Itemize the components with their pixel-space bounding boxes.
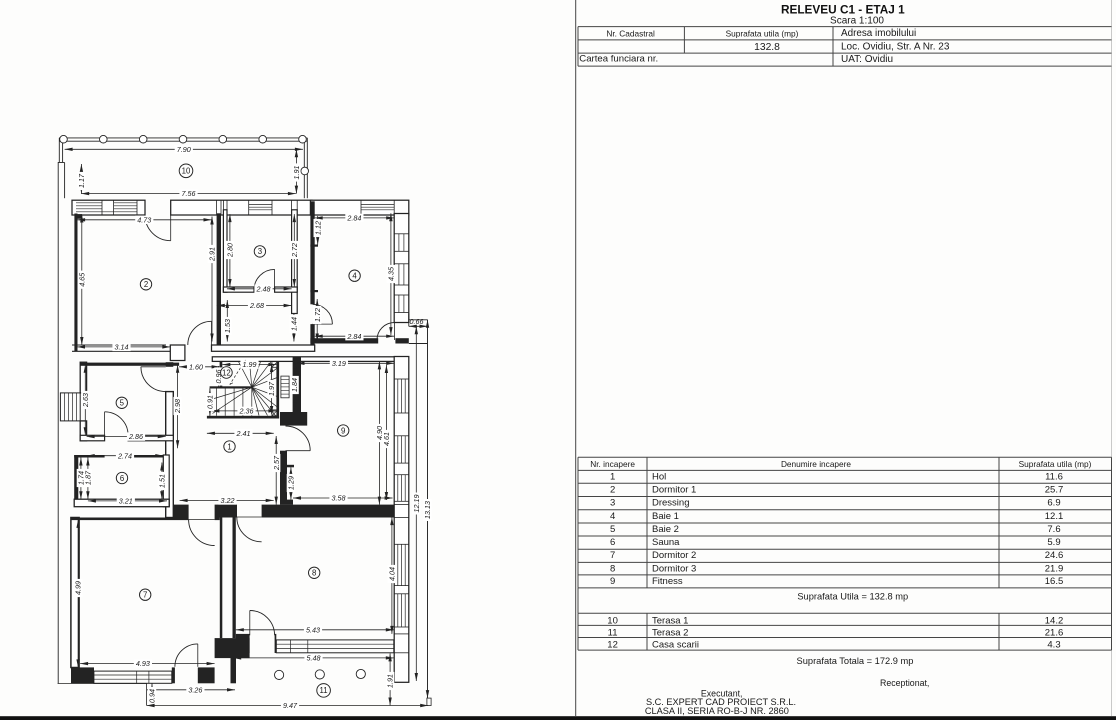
svg-text:4.35: 4.35 — [387, 266, 396, 281]
svg-text:2.86: 2.86 — [128, 432, 143, 441]
svg-text:2.91: 2.91 — [208, 247, 217, 262]
svg-text:10: 10 — [182, 167, 191, 176]
svg-text:1.51: 1.51 — [158, 474, 167, 488]
svg-text:Dormitor 2: Dormitor 2 — [652, 550, 696, 561]
svg-text:RELEVEU C1 - ETAJ 1: RELEVEU C1 - ETAJ 1 — [781, 2, 905, 16]
svg-text:11: 11 — [608, 628, 618, 639]
svg-text:2: 2 — [144, 280, 148, 289]
svg-text:24.6: 24.6 — [1045, 550, 1064, 561]
svg-text:2.84: 2.84 — [346, 214, 361, 223]
svg-text:0.94: 0.94 — [148, 689, 157, 703]
svg-text:4: 4 — [610, 511, 615, 522]
svg-text:8: 8 — [312, 569, 316, 578]
svg-text:Sauna: Sauna — [652, 537, 680, 548]
svg-text:2.63: 2.63 — [81, 393, 90, 408]
svg-text:Dormitor 3: Dormitor 3 — [652, 563, 696, 574]
svg-text:21.9: 21.9 — [1045, 563, 1064, 574]
svg-text:0.66: 0.66 — [410, 317, 424, 326]
svg-text:3.19: 3.19 — [332, 359, 346, 368]
svg-text:25.7: 25.7 — [1045, 485, 1064, 496]
svg-text:Casa scarii: Casa scarii — [652, 640, 699, 651]
svg-text:Terasa 2: Terasa 2 — [652, 628, 688, 639]
svg-text:13.13: 13.13 — [423, 501, 432, 519]
svg-text:2.36: 2.36 — [239, 407, 254, 416]
svg-text:14.2: 14.2 — [1045, 615, 1064, 626]
svg-text:2.84: 2.84 — [346, 332, 361, 341]
svg-text:Hol: Hol — [652, 471, 666, 482]
svg-text:Fitness: Fitness — [652, 576, 683, 587]
svg-text:0.91: 0.91 — [206, 395, 215, 409]
svg-text:21.6: 21.6 — [1045, 628, 1064, 639]
svg-text:Suprafata Utila = 132.8 mp: Suprafata Utila = 132.8 mp — [797, 592, 908, 602]
svg-text:4.93: 4.93 — [136, 659, 150, 668]
svg-text:UAT: Ovidiu: UAT: Ovidiu — [841, 54, 893, 65]
svg-text:2: 2 — [610, 485, 615, 496]
svg-text:1: 1 — [227, 442, 231, 451]
svg-text:Suprafata Totala = 172.9 mp: Suprafata Totala = 172.9 mp — [797, 656, 914, 666]
svg-text:5.43: 5.43 — [306, 625, 320, 634]
svg-text:Baie 1: Baie 1 — [652, 511, 679, 522]
svg-text:7: 7 — [143, 591, 147, 600]
svg-text:16.5: 16.5 — [1045, 576, 1064, 587]
svg-text:2.74: 2.74 — [117, 451, 132, 460]
svg-text:1.60: 1.60 — [189, 362, 203, 371]
svg-text:1.84: 1.84 — [290, 378, 299, 392]
svg-text:5.48: 5.48 — [307, 654, 321, 663]
svg-text:7.6: 7.6 — [1047, 524, 1060, 535]
svg-text:7: 7 — [610, 550, 615, 561]
svg-text:3.21: 3.21 — [119, 497, 133, 506]
svg-text:4.3: 4.3 — [1047, 640, 1060, 651]
svg-text:Receptionat,: Receptionat, — [880, 678, 929, 688]
svg-text:9.47: 9.47 — [283, 701, 298, 710]
svg-text:2.48: 2.48 — [256, 284, 271, 293]
svg-text:2.80: 2.80 — [226, 243, 235, 258]
svg-text:Denumire incapere: Denumire incapere — [781, 459, 851, 469]
svg-text:1.44: 1.44 — [290, 317, 299, 331]
svg-text:12: 12 — [222, 368, 231, 377]
svg-text:4.61: 4.61 — [382, 432, 391, 446]
svg-text:2.68: 2.68 — [249, 301, 264, 310]
svg-text:8: 8 — [610, 563, 615, 574]
svg-text:Baie 2: Baie 2 — [652, 524, 679, 535]
svg-text:Dressing: Dressing — [652, 498, 690, 509]
svg-text:1.87: 1.87 — [84, 470, 93, 485]
svg-text:9: 9 — [610, 576, 615, 587]
svg-text:10: 10 — [607, 615, 618, 626]
svg-text:Dormitor 1: Dormitor 1 — [652, 485, 696, 496]
svg-text:Adresa imobilului: Adresa imobilului — [841, 28, 916, 39]
svg-text:3.22: 3.22 — [221, 496, 235, 505]
svg-text:4.65: 4.65 — [77, 272, 86, 287]
svg-text:3.14: 3.14 — [115, 343, 129, 352]
svg-text:Nr. incapere: Nr. incapere — [590, 459, 635, 469]
svg-text:11: 11 — [320, 686, 328, 695]
svg-text:CLASA II, SERIA RO-B-J NR. 286: CLASA II, SERIA RO-B-J NR. 2860 — [645, 706, 789, 716]
svg-text:1.91: 1.91 — [386, 674, 395, 688]
svg-text:7.90: 7.90 — [177, 145, 191, 154]
svg-text:4: 4 — [352, 272, 357, 281]
svg-text:Loc. Ovidiu, Str. A Nr. 23: Loc. Ovidiu, Str. A Nr. 23 — [841, 42, 950, 53]
svg-text:1.12: 1.12 — [313, 221, 322, 235]
svg-text:1.53: 1.53 — [223, 319, 232, 333]
svg-text:1.72: 1.72 — [313, 308, 322, 322]
svg-text:Cartea funciara nr.: Cartea funciara nr. — [579, 54, 658, 65]
svg-text:Suprafata utila (mp): Suprafata utila (mp) — [726, 28, 799, 38]
svg-text:1.91: 1.91 — [292, 166, 301, 180]
svg-text:12.19: 12.19 — [412, 495, 421, 513]
svg-text:2.41: 2.41 — [236, 429, 251, 438]
svg-text:1.97: 1.97 — [267, 381, 276, 396]
svg-text:9: 9 — [341, 426, 345, 435]
svg-text:1.99: 1.99 — [243, 360, 257, 369]
svg-text:2.57: 2.57 — [272, 455, 281, 471]
svg-text:1.29: 1.29 — [287, 476, 296, 490]
svg-text:6: 6 — [610, 537, 615, 548]
svg-text:1: 1 — [610, 471, 615, 482]
svg-text:7.56: 7.56 — [182, 189, 196, 198]
svg-text:3.58: 3.58 — [332, 494, 346, 503]
svg-text:3: 3 — [258, 247, 262, 256]
svg-text:2.98: 2.98 — [173, 399, 182, 414]
svg-text:132.8: 132.8 — [754, 42, 780, 53]
svg-text:4.73: 4.73 — [137, 215, 151, 224]
svg-text:11.6: 11.6 — [1045, 471, 1063, 482]
svg-text:5.9: 5.9 — [1047, 537, 1060, 548]
svg-text:3.26: 3.26 — [188, 685, 202, 694]
svg-text:3: 3 — [610, 498, 615, 509]
svg-text:Nr. Cadastral: Nr. Cadastral — [606, 28, 655, 38]
svg-text:4.04: 4.04 — [388, 567, 397, 581]
svg-text:Scara 1:100: Scara 1:100 — [830, 16, 884, 27]
svg-text:6.9: 6.9 — [1047, 498, 1060, 509]
svg-text:6: 6 — [120, 474, 124, 483]
svg-text:4.99: 4.99 — [74, 581, 83, 595]
svg-text:Terasa 1: Terasa 1 — [652, 615, 688, 626]
svg-text:12.1: 12.1 — [1045, 511, 1064, 522]
svg-text:12: 12 — [607, 640, 618, 651]
svg-text:5: 5 — [120, 399, 125, 408]
svg-text:5: 5 — [610, 524, 615, 535]
svg-text:2.72: 2.72 — [290, 243, 299, 258]
svg-text:Suprafata utila (mp): Suprafata utila (mp) — [1019, 459, 1092, 469]
svg-text:1.17: 1.17 — [77, 173, 86, 188]
